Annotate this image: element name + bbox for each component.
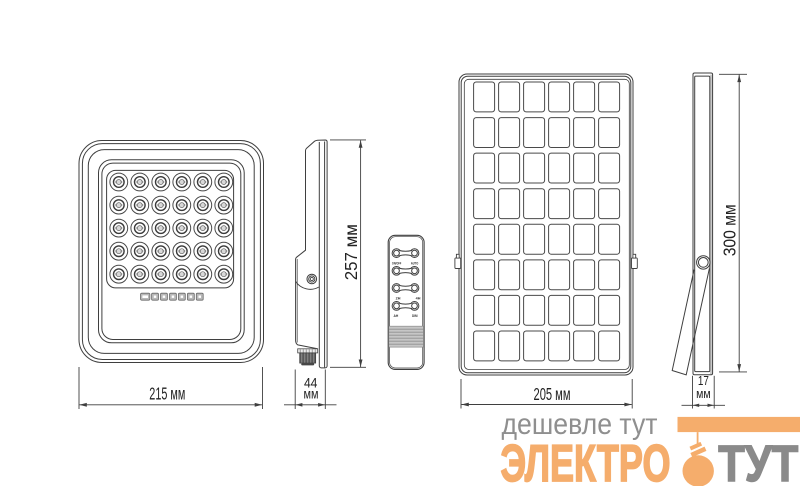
svg-text:215 мм: 215 мм bbox=[149, 384, 185, 404]
svg-text:ТУТ: ТУТ bbox=[718, 435, 798, 486]
svg-text:мм: мм bbox=[696, 386, 711, 401]
svg-text:ЭЛЕКТРО: ЭЛЕКТРО bbox=[501, 434, 671, 486]
svg-text:257 мм: 257 мм bbox=[341, 224, 361, 280]
svg-text:300 мм: 300 мм bbox=[719, 204, 739, 256]
svg-text:ON/OFF: ON/OFF bbox=[392, 262, 402, 266]
svg-text:205 мм: 205 мм bbox=[534, 384, 571, 404]
svg-text:AH: AH bbox=[394, 314, 399, 318]
svg-text:AUTO: AUTO bbox=[411, 262, 419, 266]
svg-text:DIM: DIM bbox=[412, 314, 418, 318]
svg-text:2H: 2H bbox=[396, 297, 401, 301]
svg-text:мм: мм bbox=[304, 387, 319, 402]
svg-text:4H: 4H bbox=[416, 297, 421, 301]
